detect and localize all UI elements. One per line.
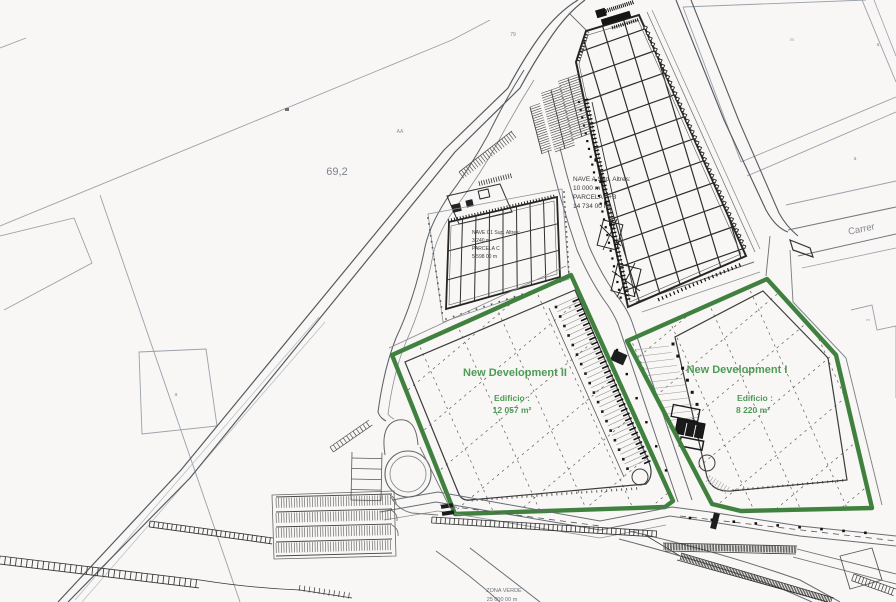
- svg-text:m: m: [790, 37, 794, 42]
- svg-text:a: a: [175, 392, 178, 398]
- svg-text:a: a: [877, 42, 880, 48]
- svg-text:5 598 00 m: 5 598 00 m: [472, 254, 497, 260]
- svg-text:69,2: 69,2: [326, 166, 347, 178]
- svg-text:10 000 m: 10 000 m: [573, 185, 600, 192]
- svg-text:New Development II: New Development II: [463, 367, 567, 379]
- svg-text:NAVE A Sup. Altres:: NAVE A Sup. Altres:: [573, 176, 631, 183]
- svg-text:PARCELA A+B: PARCELA A+B: [573, 194, 616, 201]
- svg-text:PARCELA C: PARCELA C: [472, 246, 500, 252]
- svg-text:Edificio :: Edificio :: [737, 393, 773, 403]
- svg-text:New Development I: New Development I: [687, 364, 788, 376]
- svg-text:3 240 m: 3 240 m: [472, 238, 490, 244]
- svg-text:NAVE C1 Sup. Altres:: NAVE C1 Sup. Altres:: [472, 230, 520, 236]
- svg-text:AA: AA: [397, 129, 404, 135]
- svg-text:8 220 m²: 8 220 m²: [736, 405, 770, 415]
- svg-text:79: 79: [510, 32, 516, 38]
- svg-text:14 734 00 m: 14 734 00 m: [573, 203, 609, 210]
- svg-text:ZONA VERDE: ZONA VERDE: [486, 588, 522, 594]
- svg-text:a: a: [854, 156, 857, 162]
- svg-text:Edificio :: Edificio :: [494, 393, 530, 403]
- svg-text:12 057 m²: 12 057 m²: [493, 405, 532, 415]
- svg-text:25 000 00 m: 25 000 00 m: [487, 597, 518, 602]
